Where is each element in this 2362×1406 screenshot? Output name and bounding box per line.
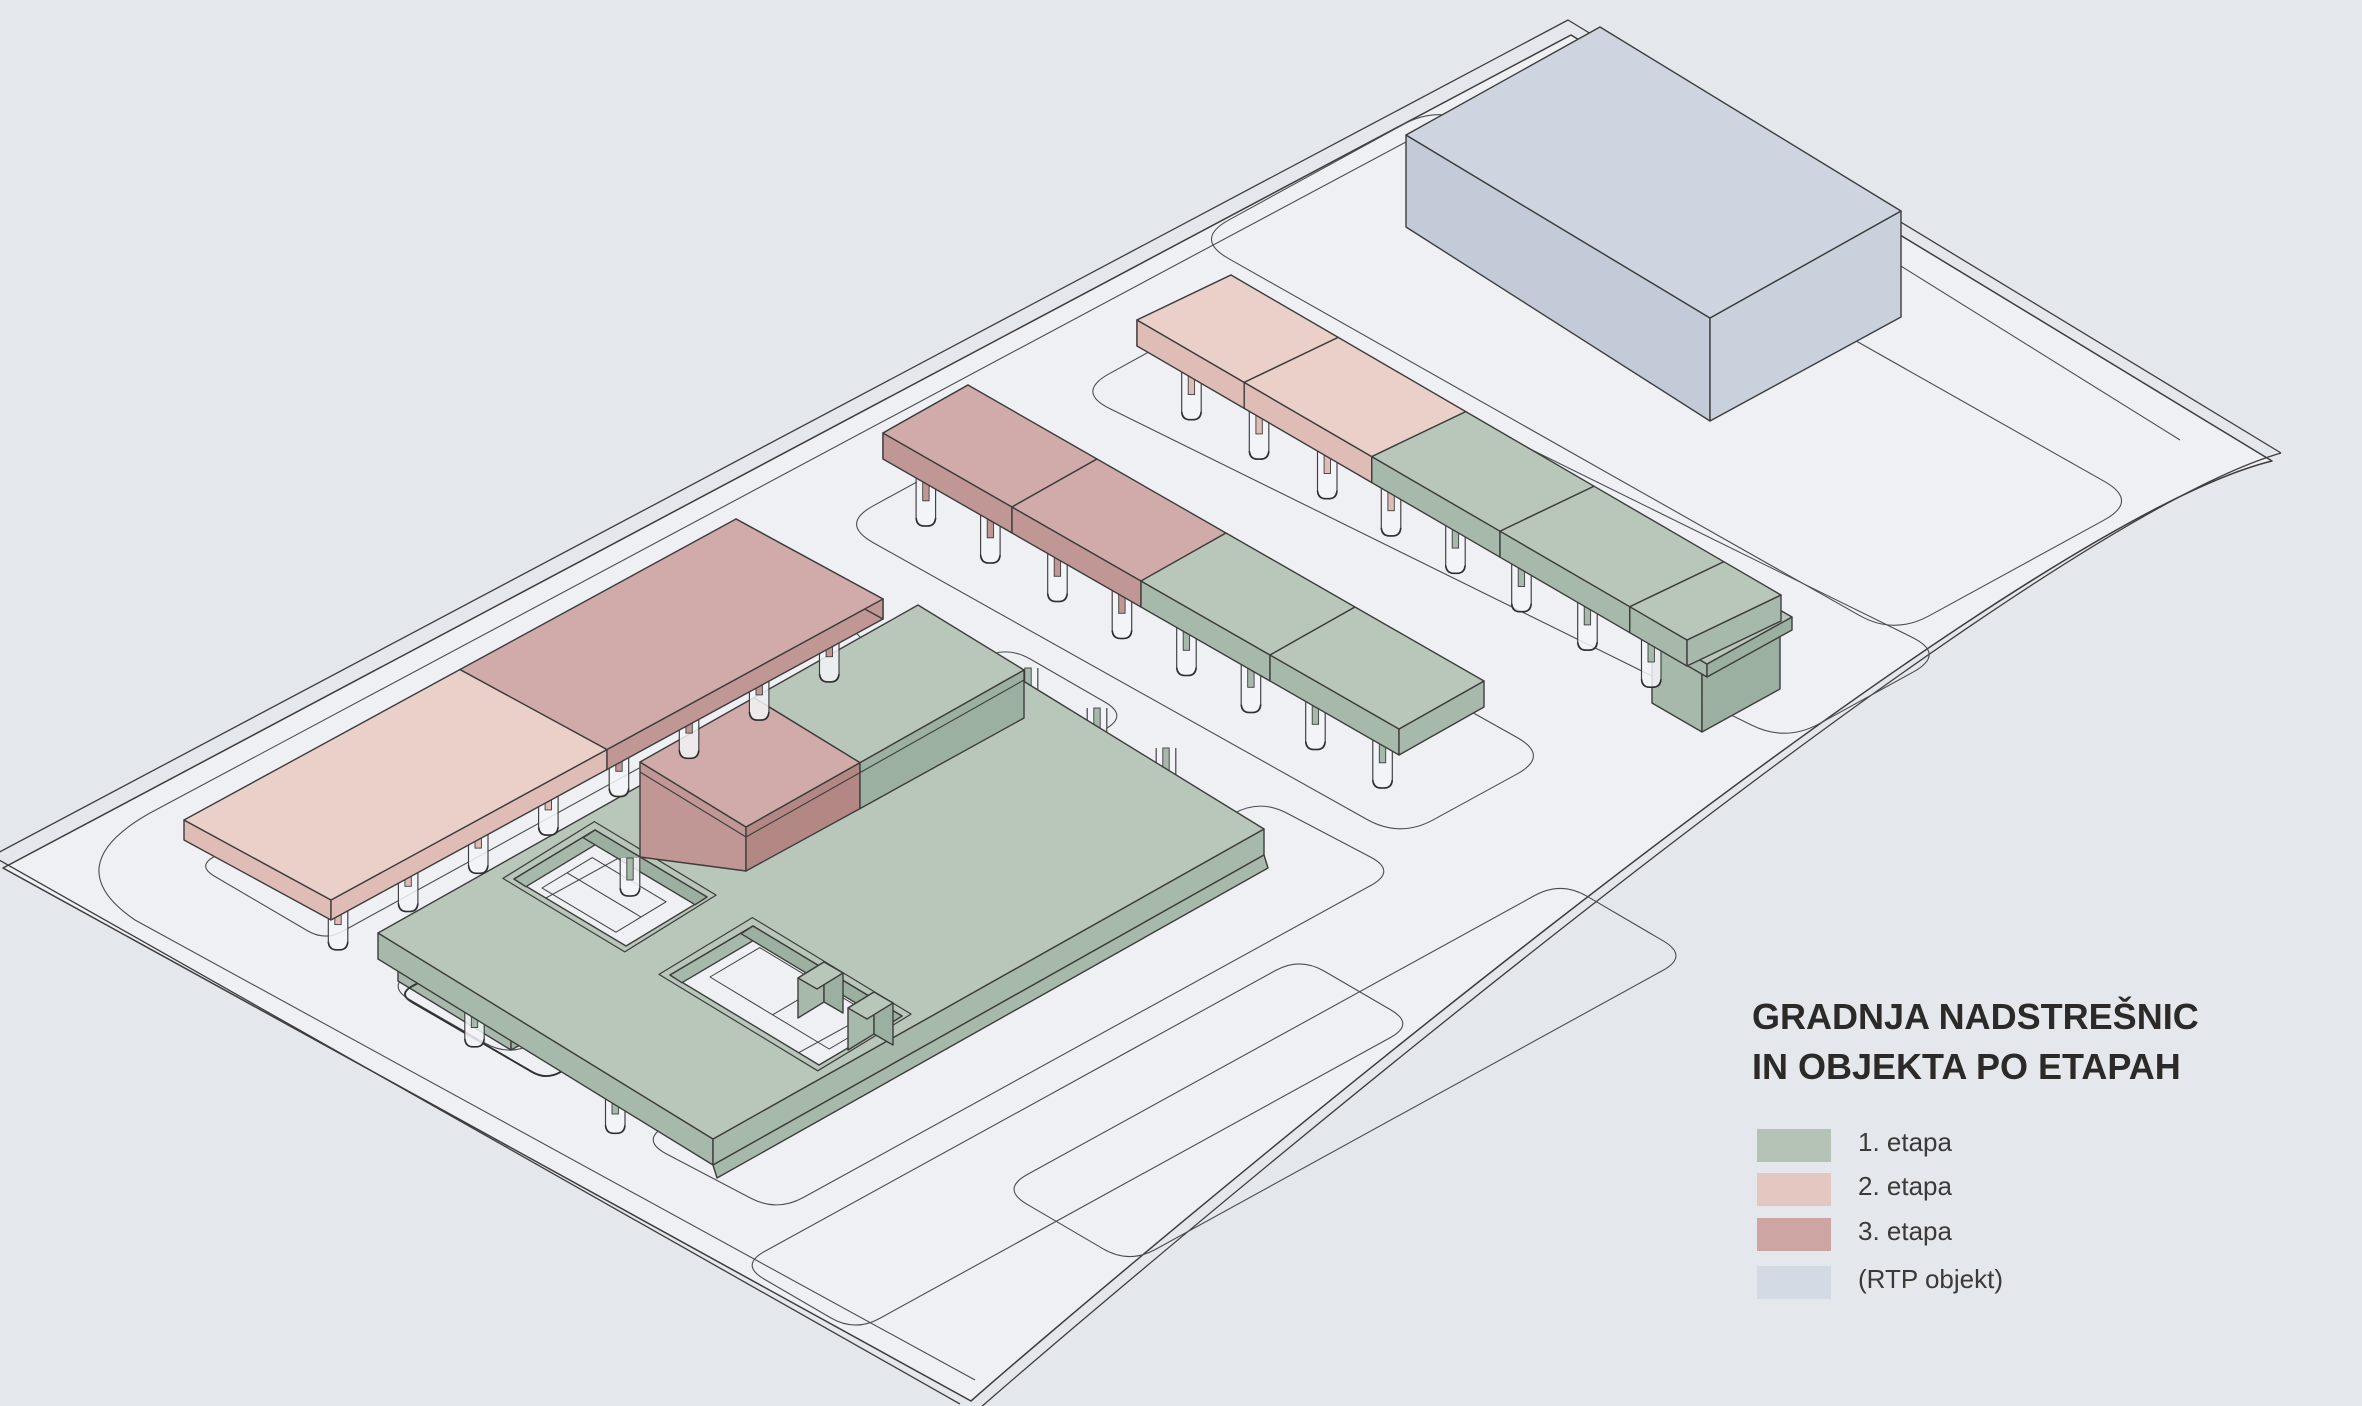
svg-text:IN OBJEKTA PO ETAPAH: IN OBJEKTA PO ETAPAH bbox=[1752, 1046, 2181, 1087]
svg-text:(RTP objekt): (RTP objekt) bbox=[1858, 1264, 2003, 1294]
svg-text:3. etapa: 3. etapa bbox=[1858, 1216, 1953, 1246]
svg-text:1. etapa: 1. etapa bbox=[1858, 1127, 1953, 1157]
svg-text:GRADNJA NADSTREŠNIC: GRADNJA NADSTREŠNIC bbox=[1752, 995, 2199, 1037]
svg-text:2. etapa: 2. etapa bbox=[1858, 1171, 1953, 1201]
